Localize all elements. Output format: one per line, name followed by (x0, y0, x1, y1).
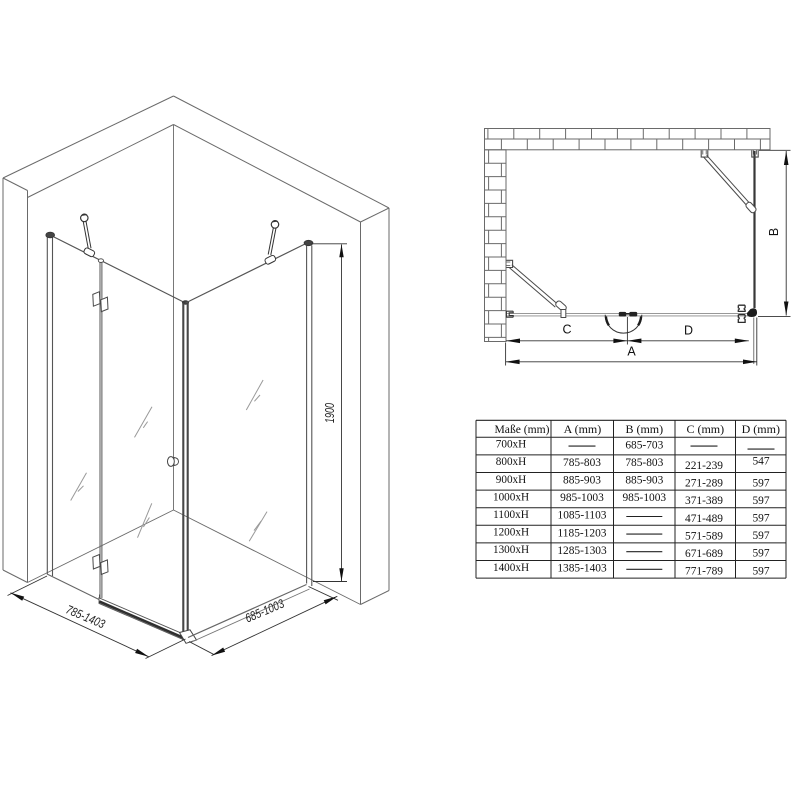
svg-text:900xH: 900xH (496, 474, 526, 486)
svg-text:885-903: 885-903 (563, 475, 601, 487)
svg-text:1385-1403: 1385-1403 (557, 563, 607, 575)
svg-text:Maße (mm): Maße (mm) (495, 422, 550, 436)
svg-text:800xH: 800xH (496, 456, 526, 468)
svg-text:771-789: 771-789 (685, 566, 723, 578)
svg-text:D (mm): D (mm) (742, 422, 780, 436)
svg-text:597: 597 (752, 513, 769, 525)
svg-text:1100xH: 1100xH (493, 509, 529, 521)
svg-text:597: 597 (752, 495, 769, 507)
svg-text:985-1003: 985-1003 (622, 492, 666, 504)
svg-text:1200xH: 1200xH (493, 527, 529, 539)
svg-text:C: C (562, 323, 571, 337)
svg-text:597: 597 (752, 530, 769, 542)
svg-text:1285-1303: 1285-1303 (557, 545, 607, 557)
svg-text:B: B (767, 228, 781, 236)
svg-text:700xH: 700xH (496, 439, 526, 451)
svg-text:371-389: 371-389 (685, 495, 723, 507)
svg-text:1400xH: 1400xH (493, 562, 529, 574)
svg-text:597: 597 (752, 565, 769, 577)
svg-text:B (mm): B (mm) (625, 422, 663, 436)
svg-text:D: D (684, 324, 693, 338)
svg-text:271-289: 271-289 (685, 478, 723, 490)
svg-text:C (mm): C (mm) (686, 422, 724, 436)
svg-text:1000xH: 1000xH (493, 491, 529, 503)
svg-text:1300xH: 1300xH (493, 544, 529, 556)
svg-text:1085-1103: 1085-1103 (558, 510, 607, 522)
svg-text:785-803: 785-803 (625, 457, 663, 469)
svg-text:A (mm): A (mm) (564, 422, 602, 436)
svg-text:471-489: 471-489 (685, 513, 723, 525)
svg-text:571-589: 571-589 (685, 530, 723, 542)
svg-text:685-703: 685-703 (625, 439, 663, 451)
svg-text:597: 597 (752, 477, 769, 489)
svg-text:221-239: 221-239 (685, 460, 723, 472)
svg-text:885-903: 885-903 (625, 475, 663, 487)
svg-text:547: 547 (752, 456, 769, 468)
svg-text:671-689: 671-689 (685, 548, 723, 560)
svg-text:785-803: 785-803 (563, 457, 601, 469)
svg-text:1185-1203: 1185-1203 (558, 527, 607, 539)
svg-text:597: 597 (752, 548, 769, 560)
svg-text:1900: 1900 (322, 402, 337, 423)
svg-text:A: A (627, 345, 636, 359)
svg-text:985-1003: 985-1003 (560, 492, 604, 504)
